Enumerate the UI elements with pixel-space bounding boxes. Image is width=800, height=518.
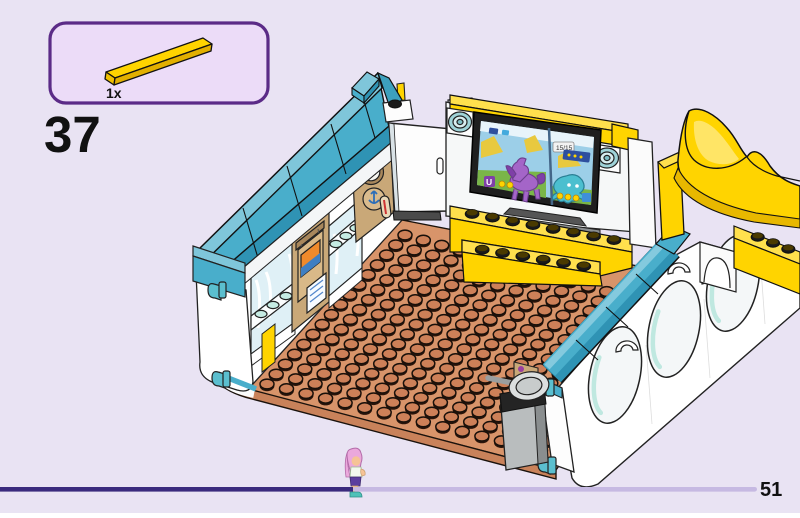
svg-text:37: 37	[44, 106, 101, 163]
svg-text:U: U	[486, 177, 492, 187]
svg-text:51: 51	[760, 479, 782, 501]
svg-text:1x: 1x	[106, 85, 122, 101]
